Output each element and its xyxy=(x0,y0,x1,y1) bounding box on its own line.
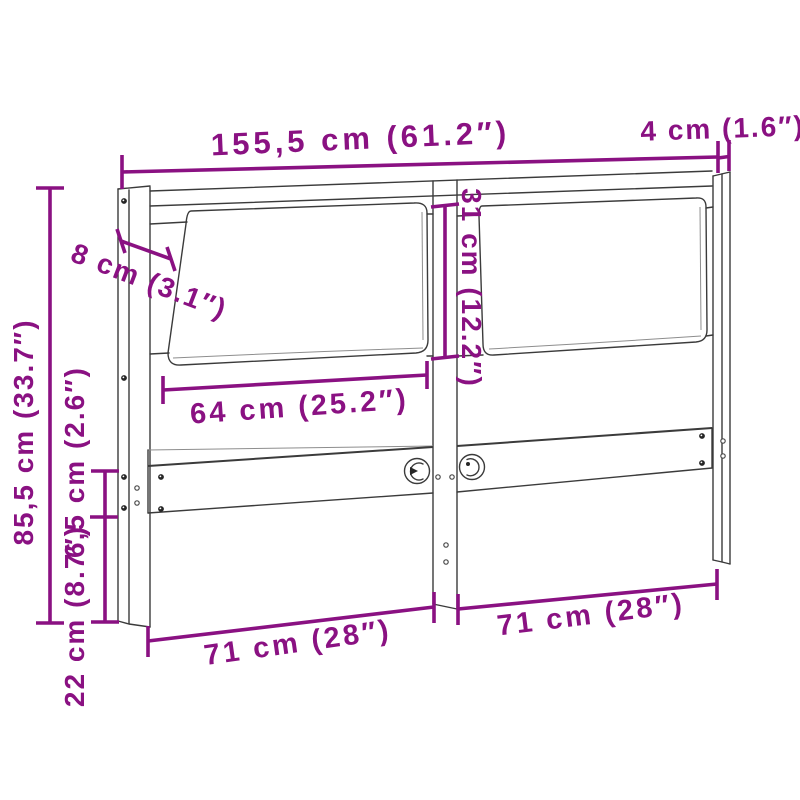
dim-right-section: 71 cm (28″) xyxy=(458,569,717,642)
right-post xyxy=(713,172,730,564)
dim-cushion-width: 64 cm (25.2″) xyxy=(163,361,427,431)
dim-post-depth-label: 4 cm (1.6″) xyxy=(640,110,800,147)
dim-total-height-label: 85,5 cm (33.7″) xyxy=(8,318,39,545)
dim-cushion-width-label: 64 cm (25.2″) xyxy=(189,383,410,430)
headboard-dimension-diagram: 155,5 cm (61.2″) 4 cm (1.6″) 8 cm (3.1″)… xyxy=(0,0,800,800)
dim-cushion-height-label: 31 cm (12.2″) xyxy=(456,188,487,388)
diagram-canvas: 155,5 cm (61.2″) 4 cm (1.6″) 8 cm (3.1″)… xyxy=(0,0,800,800)
cam-lock-left xyxy=(405,459,430,484)
dim-post-depth: 4 cm (1.6″) xyxy=(640,110,800,171)
dim-lower-section-label: 22 cm (8.7″) xyxy=(59,525,90,707)
frame-connectors xyxy=(150,207,713,356)
dim-left-section: 71 cm (28″) xyxy=(148,592,434,672)
dim-left-inner: 6,5 cm (2.6″) 22 cm (8.7″) xyxy=(59,366,119,707)
right-cushion xyxy=(479,198,707,355)
left-cushion xyxy=(168,203,428,365)
dim-total-width: 155,5 cm (61.2″) xyxy=(122,114,718,189)
dim-cushion-height: 31 cm (12.2″) xyxy=(431,188,487,388)
dim-total-height: 85,5 cm (33.7″) xyxy=(8,188,64,623)
cam-lock-right xyxy=(460,455,485,480)
pilot-holes xyxy=(135,439,725,564)
left-post xyxy=(118,186,150,627)
dim-total-width-label: 155,5 cm (61.2″) xyxy=(210,114,511,162)
